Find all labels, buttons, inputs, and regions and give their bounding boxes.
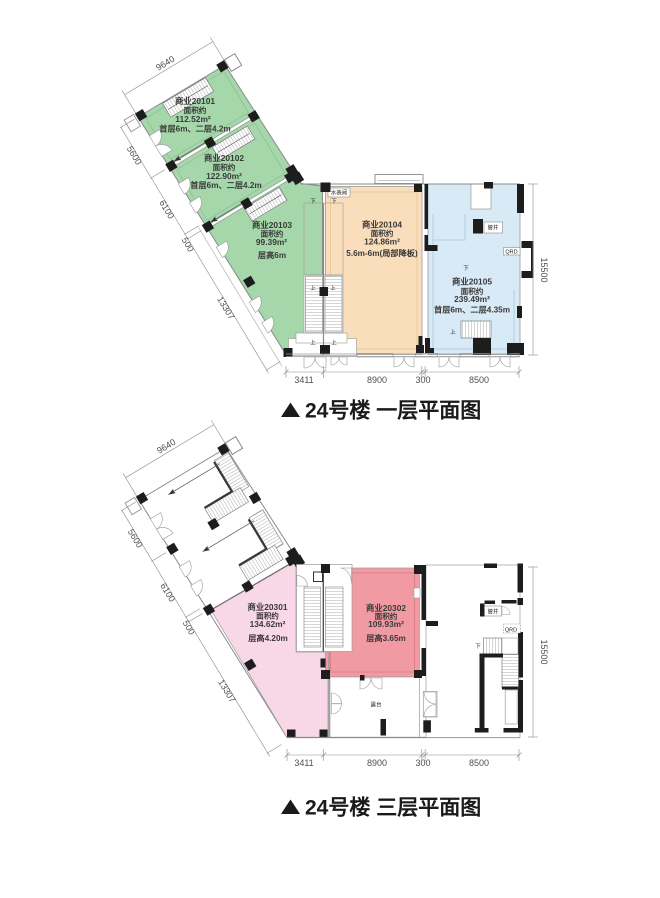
svg-text:上: 上 [310, 284, 316, 292]
svg-text:首层6m、二层4.2m: 首层6m、二层4.2m [159, 124, 230, 134]
svg-text:8900: 8900 [367, 758, 387, 768]
svg-text:300: 300 [415, 758, 430, 768]
svg-text:99.39m²: 99.39m² [256, 237, 287, 247]
svg-text:下: 下 [475, 643, 481, 650]
svg-text:商业20101: 商业20101 [175, 96, 215, 106]
svg-text:500: 500 [180, 236, 196, 254]
svg-text:商业20105: 商业20105 [452, 277, 492, 287]
svg-text:300: 300 [415, 375, 430, 385]
svg-text:6100: 6100 [157, 198, 176, 220]
svg-text:水表阀: 水表阀 [331, 189, 348, 197]
svg-text:112.52m²: 112.52m² [175, 114, 211, 124]
svg-text:3411: 3411 [294, 758, 313, 768]
svg-text:层高6m: 层高6m [258, 250, 286, 260]
svg-text:层高3.65m: 层高3.65m [366, 633, 406, 643]
svg-text:24号楼 一层平面图: 24号楼 一层平面图 [305, 400, 481, 423]
svg-text:134.62m²: 134.62m² [250, 619, 286, 629]
svg-text:13307: 13307 [216, 678, 237, 705]
svg-text:上: 上 [450, 328, 456, 336]
svg-text:QRD: QRD [505, 250, 517, 256]
svg-text:管井: 管井 [487, 224, 499, 232]
svg-text:15500: 15500 [539, 257, 549, 282]
svg-text:8500: 8500 [469, 375, 489, 385]
svg-text:122.90m²: 122.90m² [206, 171, 242, 181]
svg-text:8900: 8900 [367, 375, 387, 385]
svg-text:商业20301: 商业20301 [247, 602, 287, 612]
svg-text:3411: 3411 [294, 375, 313, 385]
svg-text:层高4.20m: 层高4.20m [248, 633, 288, 643]
svg-text:8500: 8500 [469, 758, 489, 768]
svg-text:5600: 5600 [126, 527, 145, 549]
svg-text:露台: 露台 [370, 701, 382, 709]
svg-text:商业20104: 商业20104 [362, 220, 402, 230]
svg-text:124.86m²: 124.86m² [364, 237, 400, 247]
svg-text:109.93m²: 109.93m² [368, 619, 404, 629]
svg-text:商业20103: 商业20103 [252, 220, 292, 230]
svg-text:5.6m-6m(局部降板): 5.6m-6m(局部降板) [346, 248, 418, 258]
svg-text:24号楼 三层平面图: 24号楼 三层平面图 [305, 797, 481, 820]
svg-text:500: 500 [181, 619, 197, 637]
svg-text:5600: 5600 [125, 144, 144, 166]
svg-text:9640: 9640 [154, 54, 176, 73]
svg-text:13307: 13307 [215, 295, 236, 322]
svg-text:上: 上 [330, 284, 336, 292]
svg-text:15500: 15500 [539, 639, 549, 664]
svg-text:QRD: QRD [505, 628, 517, 634]
svg-text:上: 上 [331, 339, 337, 347]
svg-text:239.49m²: 239.49m² [454, 294, 490, 304]
svg-text:9640: 9640 [155, 437, 177, 456]
svg-text:下: 下 [310, 198, 316, 205]
svg-text:下: 下 [331, 198, 337, 205]
svg-text:上: 上 [310, 339, 316, 347]
svg-text:商业20102: 商业20102 [204, 153, 244, 163]
svg-text:6100: 6100 [158, 581, 177, 603]
svg-text:下: 下 [463, 265, 469, 272]
svg-text:首层6m、二层4.2m: 首层6m、二层4.2m [190, 180, 261, 190]
svg-text:首层6m、二层4.35m: 首层6m、二层4.35m [434, 305, 510, 315]
svg-text:管井: 管井 [487, 608, 499, 616]
